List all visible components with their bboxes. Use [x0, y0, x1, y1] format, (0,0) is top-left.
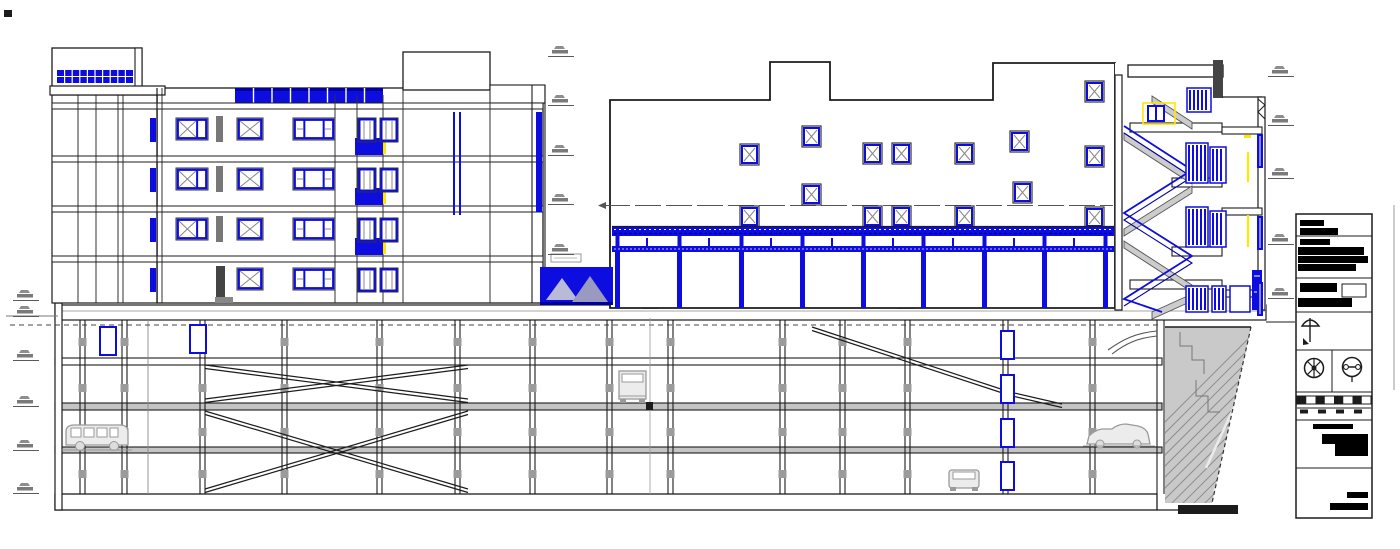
elevation-marker [13, 483, 39, 494]
window-x-small [892, 143, 911, 164]
elevation-marker [548, 46, 574, 57]
elevation-marker [1268, 168, 1294, 179]
window-x-small [1085, 207, 1104, 228]
window-x [237, 218, 263, 240]
elevation-marker [548, 95, 574, 106]
title-block: SD-5 [1296, 214, 1372, 518]
parking-garage [6, 303, 1266, 510]
glazed-door [1187, 88, 1211, 112]
window-x-small [863, 206, 882, 227]
window-x [237, 268, 263, 290]
window-x [176, 168, 208, 190]
glazed-door [1186, 207, 1208, 247]
window-x-small [955, 206, 974, 227]
elevation-marker [548, 244, 574, 255]
window-3pane [293, 268, 335, 290]
vehicle-truck-rear [619, 371, 646, 403]
penthouse-glazing [57, 70, 133, 83]
glazed-door [1186, 143, 1208, 183]
elevation-marker [13, 306, 39, 317]
window-x [176, 118, 208, 140]
window-x-small [802, 184, 821, 205]
glazed-door [1186, 286, 1208, 312]
stair-tower [1115, 60, 1266, 319]
vehicle-car-rear [949, 470, 979, 491]
mid-building [598, 62, 1115, 308]
window-x [237, 168, 263, 190]
window-3pane [293, 168, 335, 190]
canopy-triangle-panel [540, 267, 613, 305]
window-x-small [863, 143, 882, 164]
elevation-marker [548, 145, 574, 156]
window-x-small [740, 144, 759, 165]
section-drawing-canvas: SD-5 [0, 0, 1400, 549]
elevation-marker [13, 396, 39, 407]
window-x-small [802, 126, 821, 147]
window-x [237, 118, 263, 140]
elevation-marker [1268, 234, 1294, 245]
glazed-door [1212, 286, 1226, 312]
window-x-small [1010, 131, 1029, 152]
window-x-small [740, 206, 759, 227]
window-x-small [1085, 81, 1104, 102]
drawing-sheet: SD-5 [0, 0, 1400, 549]
elevation-marker [13, 350, 39, 361]
elevation-marker [13, 290, 39, 301]
window-x-small [955, 143, 974, 164]
elevation-marker [548, 194, 574, 205]
glazed-door [1210, 211, 1226, 247]
balcony-railing [1257, 216, 1263, 250]
stamp-logo-left-icon [1305, 359, 1324, 378]
window-3pane [293, 218, 335, 240]
elevation-marker [13, 440, 39, 451]
elevation-marker [1268, 115, 1294, 126]
elevation-marker [1268, 288, 1294, 299]
roof-railing [235, 88, 383, 104]
left-building [50, 48, 545, 303]
balcony-railing [1257, 282, 1263, 316]
window-3pane [293, 118, 335, 140]
window-x-small [1013, 182, 1032, 203]
window-x-small [1085, 146, 1104, 167]
glazed-door [1210, 147, 1226, 183]
balcony-railing [1257, 134, 1263, 168]
window-x [176, 218, 208, 240]
window-x-small [892, 206, 911, 227]
elevation-marker [1268, 66, 1294, 77]
vehicle-car-side [1083, 424, 1155, 448]
